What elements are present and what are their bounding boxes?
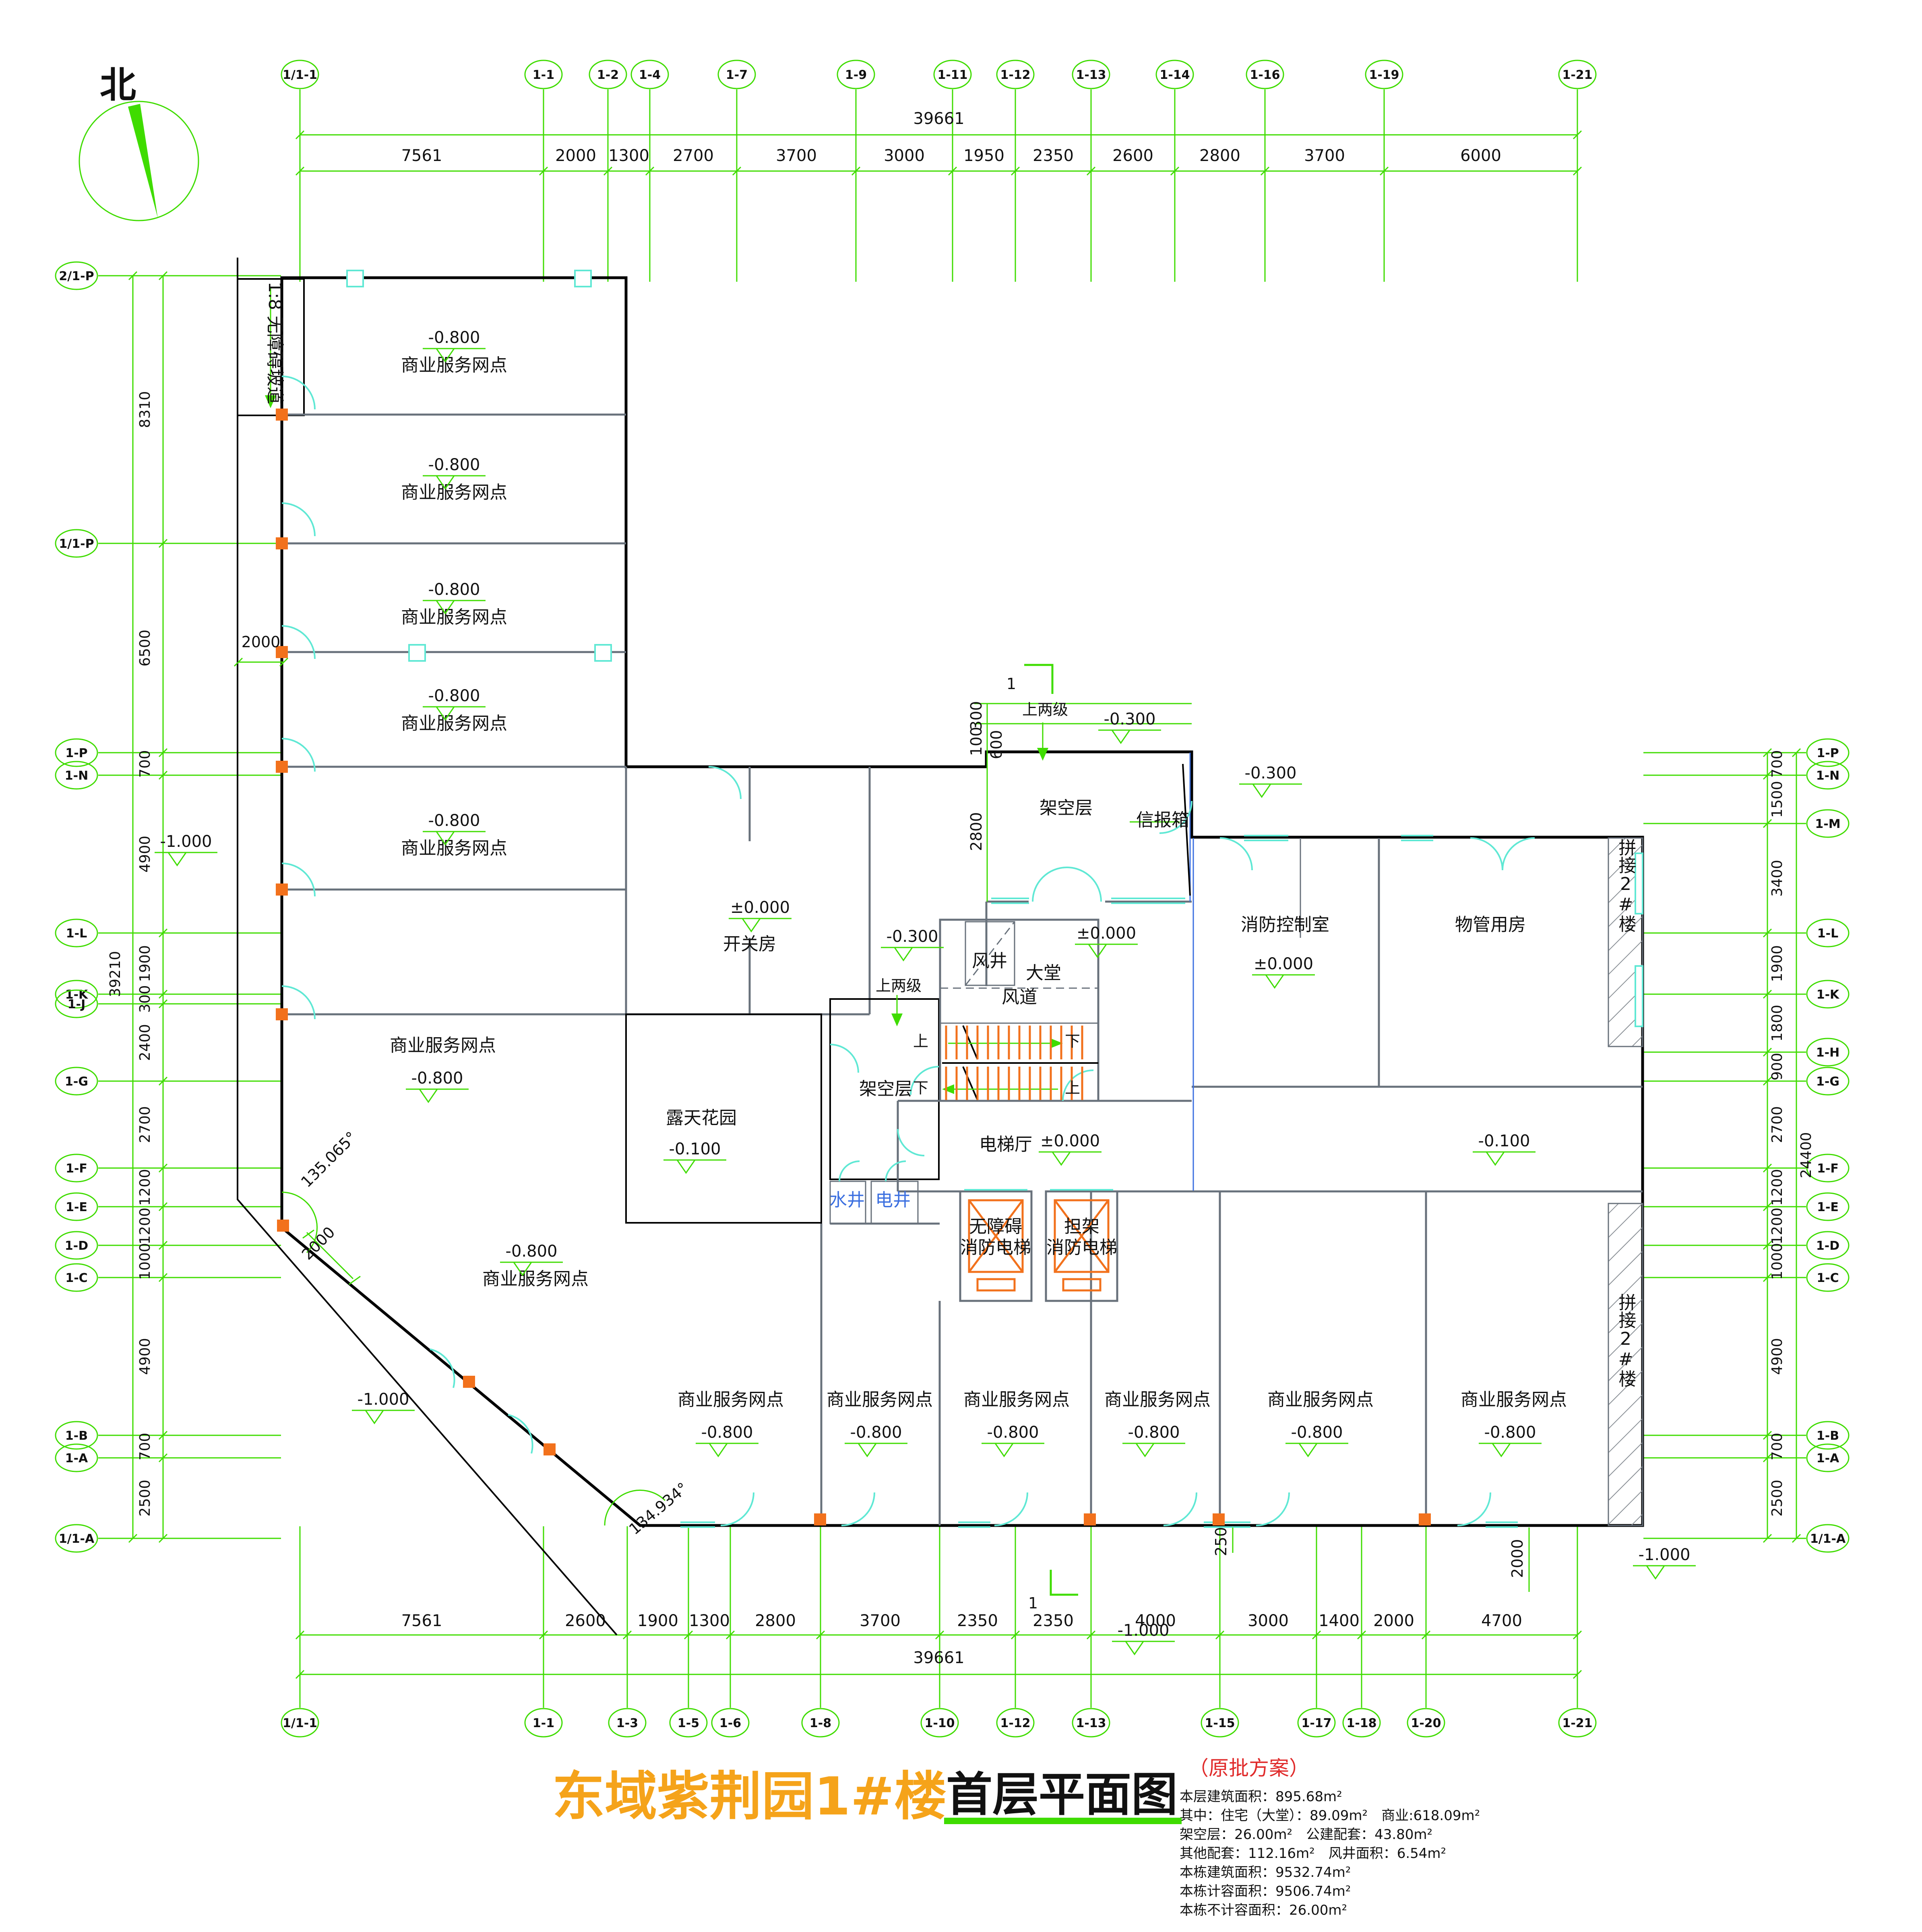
grid-bubble-label-right: 1-G	[1816, 1075, 1839, 1089]
elevation-symbol	[1112, 1641, 1175, 1654]
dim-text-left: 1200	[137, 1207, 153, 1245]
up2-arrow-top-head	[1037, 748, 1048, 761]
annotation-d600: 600	[988, 730, 1005, 760]
stats-line-6: 本栋计容面积：9506.74m²	[1180, 1883, 1351, 1899]
grid-bubble-label-top: 1-9	[845, 68, 867, 82]
dim-total-top: 39661	[913, 109, 964, 128]
elevation-symbol	[663, 1160, 726, 1173]
elevation-value: -0.300	[1245, 764, 1297, 782]
dim-text-bottom: 3000	[1248, 1612, 1289, 1630]
room-label-switch_room: 开关房	[723, 934, 776, 954]
elevation-value: -0.800	[987, 1423, 1039, 1442]
window-square-3	[409, 645, 425, 661]
elevation-symbol	[1098, 730, 1161, 743]
grid-bubble-label-bottom: 1-20	[1411, 1716, 1441, 1730]
building-walls	[282, 278, 1643, 1525]
pm-room-double-door	[1470, 838, 1535, 870]
stats-line-3: 架空层：26.00m² 公建配套：43.80m²	[1180, 1827, 1432, 1843]
elevation-symbol	[1479, 1443, 1542, 1456]
grid-bubble-label-right: 1-A	[1817, 1451, 1839, 1466]
dim-text-right: 700	[1769, 1433, 1786, 1461]
elevation-symbol	[155, 852, 217, 865]
grid-bubble-label-right: 1-E	[1817, 1200, 1839, 1214]
annotation-ang2: 134.934°	[626, 1479, 691, 1538]
grid-bubble-label-top: 1-13	[1076, 68, 1106, 82]
room-label-shop: 商业服务网点	[401, 355, 507, 376]
elevation-value: -0.100	[669, 1140, 721, 1158]
grid-bubble-label-bottom: 1-10	[924, 1716, 955, 1730]
elevation-marker: ±0.000	[729, 898, 792, 931]
elevation-value: -0.800	[428, 811, 480, 830]
grid-bubble-label-bottom: 1-8	[810, 1716, 831, 1730]
dim-text-top: 3700	[776, 147, 817, 165]
grid-bubble-label-left: 1-E	[66, 1200, 87, 1214]
window-square-1	[347, 270, 363, 287]
grid-bubble-label-bottom: 1-5	[678, 1716, 699, 1730]
grid-bubble-label-right: 1-H	[1816, 1046, 1839, 1060]
elevation-marker: -0.800	[1285, 1423, 1348, 1456]
elevation-marker: -0.800	[696, 1423, 758, 1456]
grid-system: 1/1-11-11-21-41-71-91-111-121-131-141-16…	[56, 60, 1849, 1737]
elevator-1-counterweight	[978, 1279, 1015, 1290]
dim-text-bottom: 2350	[957, 1612, 998, 1630]
grid-bubble-label-top: 1-2	[597, 68, 619, 82]
room-label-fire_elev: 消防电梯	[960, 1237, 1031, 1258]
elevation-marker: ±0.000	[1039, 1132, 1102, 1165]
elevation-marker: -1.000	[155, 832, 217, 865]
dim-text-right: 3400	[1769, 860, 1786, 897]
elevation-symbol	[352, 1410, 415, 1423]
drawing-title: 首层平面图	[946, 1768, 1178, 1822]
project-title: 东域紫荆园1#楼	[552, 1766, 947, 1827]
room-label-shop: 商业服务网点	[401, 713, 507, 734]
room-label-shop: 商业服务网点	[1104, 1389, 1211, 1410]
elevation-value: -1.000	[358, 1390, 409, 1409]
grid-bubble-label-left: 1-N	[65, 769, 88, 783]
elevation-value: ±0.000	[730, 898, 790, 917]
annotation-d100: 100	[967, 727, 985, 756]
grid-bubble-label-left: 1-G	[65, 1075, 88, 1089]
elevation-value: -0.800	[428, 328, 480, 347]
room-label-elev_hall: 电梯厅	[979, 1134, 1032, 1155]
elevation-symbol	[729, 919, 792, 931]
corridor-walls	[1192, 1087, 1643, 1191]
grid-bubble-label-right: 1-D	[1816, 1239, 1839, 1253]
elevation-value: -0.800	[1484, 1423, 1536, 1442]
elevation-symbol	[1075, 944, 1138, 957]
grid-bubble-label-bottom: 1-18	[1346, 1716, 1376, 1730]
dim-text-left: 8310	[137, 391, 153, 428]
dim-text-top: 1300	[608, 147, 649, 165]
room-label-fire_ctrl: 消防控制室	[1241, 914, 1329, 935]
dim-text-left: 300	[137, 985, 153, 1013]
elevation-marker: -1.000	[1112, 1621, 1175, 1654]
dim-text-right: 700	[1769, 750, 1786, 778]
dim-text-left: 4900	[137, 1338, 153, 1375]
dim-text-bottom: 1400	[1319, 1612, 1360, 1630]
grid-bubble-label-bottom: 1-1	[533, 1716, 554, 1730]
dim-text-top: 2000	[555, 147, 596, 165]
bottom-room-walls	[821, 1191, 1426, 1525]
room-label-shop: 商业服务网点	[401, 838, 507, 859]
grid-bubble-label-top: 1-7	[726, 68, 748, 82]
dim-text-bottom: 4700	[1481, 1612, 1522, 1630]
dim-text-top: 7561	[401, 147, 442, 165]
annotation-d2000: 2000	[1509, 1539, 1526, 1578]
east-window-2	[1635, 966, 1643, 1026]
dim-text-right: 2500	[1769, 1480, 1786, 1517]
grid-bubble-label-right: 1-M	[1815, 817, 1840, 831]
grid-bubble-label-top: 1-4	[639, 68, 661, 82]
dim-text-left: 6500	[137, 630, 153, 667]
grid-bubble-label-bottom: 1-13	[1076, 1716, 1106, 1730]
room-label-elec_shaft: 电井	[875, 1190, 911, 1210]
elevation-value: -1.000	[1639, 1546, 1691, 1564]
grid-bubble-label-left: 1-J	[68, 997, 86, 1011]
grid-bubble-label-bottom: 1-3	[616, 1716, 638, 1730]
dim-total-left: 39210	[107, 951, 124, 997]
dim-text-top: 2600	[1112, 147, 1153, 165]
elevation-value: -0.800	[506, 1242, 558, 1261]
dim-text-right: 1200	[1769, 1207, 1786, 1245]
annotation-down: 下	[913, 1079, 928, 1097]
stats-line-1: 本层建筑面积：895.68m²	[1180, 1789, 1342, 1805]
room-label-join2: 拼接2#楼	[1616, 1293, 1636, 1387]
elevation-value: -0.800	[428, 580, 480, 599]
annotation-up2: 上两级	[1022, 701, 1068, 718]
door-arc-switch-room	[709, 767, 741, 799]
stats-line-7: 本栋不计容面积：26.00m²	[1180, 1902, 1347, 1918]
annotation-d2800: 2800	[967, 812, 985, 851]
dim-text-bottom: 2800	[755, 1612, 796, 1630]
grid-bubble-label-top: 1-11	[937, 68, 967, 82]
grid-bubble-label-left: 1-C	[65, 1271, 87, 1285]
elevation-value: -1.000	[1118, 1621, 1170, 1640]
elevation-symbol	[1039, 1152, 1102, 1165]
north-needle	[128, 104, 158, 218]
dim-text-top: 2800	[1199, 147, 1240, 165]
grid-bubble-label-left: 1-L	[66, 927, 87, 941]
grid-bubble-label-left: 1-D	[65, 1239, 88, 1253]
room-label-fire_elev: 消防电梯	[1046, 1237, 1117, 1258]
room-label-ramp: 1:8 无障碍坡道	[265, 282, 285, 405]
elevation-symbol	[1252, 975, 1315, 988]
annotation-sec: 1	[1028, 1594, 1038, 1612]
elevation-value: ±0.000	[1077, 924, 1136, 943]
floor-plan-canvas: 1/1-11-11-21-41-71-91-111-121-131-141-16…	[0, 0, 1922, 1932]
elevation-value: -0.300	[887, 927, 938, 946]
stair-arrow-down-head	[942, 1084, 954, 1094]
elevation-value: -0.800	[428, 456, 480, 474]
dim-text-top: 3700	[1304, 147, 1345, 165]
grid-bubble-label-top: 1-19	[1369, 68, 1399, 82]
elevation-marker: ±0.000	[1252, 955, 1315, 988]
dim-text-left: 1000	[137, 1243, 153, 1280]
dim-text-right: 1800	[1769, 1005, 1786, 1042]
elevation-value: ±0.000	[1040, 1132, 1100, 1150]
dim-text-bottom: 2350	[1033, 1612, 1074, 1630]
door-arcs-bottom	[721, 1492, 1490, 1525]
grid-bubble-label-bottom: 1-12	[1000, 1716, 1030, 1730]
elevation-value: -0.800	[1291, 1423, 1343, 1442]
grid-bubble-label-right: 1-N	[1816, 769, 1839, 783]
elevation-symbol	[696, 1443, 758, 1456]
dim-text-left: 700	[137, 750, 153, 778]
dim-text-right: 1900	[1769, 945, 1786, 982]
elevation-marker: -0.800	[1479, 1423, 1542, 1456]
annotation-up: 上	[913, 1032, 928, 1050]
dim-text-right: 1200	[1769, 1169, 1786, 1206]
dim-text-bottom: 1900	[637, 1612, 678, 1630]
room-label-shop: 商业服务网点	[1267, 1389, 1374, 1410]
door-arc-hall	[898, 1129, 924, 1156]
grid-bubble-label-right: 1/1-A	[1810, 1532, 1846, 1546]
annotation-graphics	[234, 658, 1529, 1595]
grid-bubble-label-right: 1-F	[1817, 1162, 1839, 1176]
room-label-mailbox: 信报箱	[1136, 810, 1189, 830]
grid-bubble-label-top: 1-1	[533, 68, 554, 82]
grid-bubble-label-left: 2/1-P	[59, 269, 94, 283]
dim-total-right: 24400	[1798, 1132, 1815, 1179]
dim-text-top: 2350	[1033, 147, 1074, 165]
room-label-void_floor: 架空层	[1040, 798, 1093, 818]
elevation-value: -0.100	[1478, 1132, 1530, 1150]
grid-bubble-label-left: 1-P	[65, 746, 87, 760]
room-label-lobby: 大堂	[1026, 963, 1061, 983]
dim-text-right: 1500	[1769, 781, 1786, 818]
north-arrow: 北	[79, 64, 198, 221]
room-label-shop: 商业服务网点	[401, 607, 507, 627]
elevation-value: -0.800	[411, 1069, 463, 1088]
elevation-marker: -1.000	[352, 1390, 415, 1423]
east-window-1	[1635, 853, 1643, 914]
grid-bubble-label-top: 1-21	[1562, 68, 1592, 82]
annotation-down: 下	[1065, 1032, 1080, 1050]
section-bracket-top	[1024, 665, 1052, 694]
annotation-d2000: 2000	[242, 633, 281, 651]
dim-text-left: 4900	[137, 836, 153, 873]
annotation-up: 上	[1065, 1079, 1080, 1097]
elevation-marker: -0.800	[845, 1423, 907, 1456]
dim-text-left: 2500	[137, 1480, 153, 1517]
elevation-marker: -0.300	[1239, 764, 1302, 797]
window-square-4	[595, 645, 611, 661]
room-label-elev1a: 无障碍	[969, 1216, 1022, 1237]
room-label-elev2a: 担架	[1064, 1216, 1099, 1237]
room-label-wind_duct: 风道	[1002, 987, 1037, 1007]
drawing-title-underline	[944, 1818, 1182, 1824]
elevation-symbol	[1285, 1443, 1348, 1456]
room-label-shop: 商业服务网点	[827, 1389, 933, 1410]
room-label-shop: 商业服务网点	[963, 1389, 1070, 1410]
elevation-symbol	[406, 1089, 469, 1102]
room-label-pm_room: 物管用房	[1455, 914, 1526, 935]
elevation-symbol	[881, 947, 944, 960]
room-label-garden: 露天花园	[666, 1108, 737, 1128]
annotation-sec: 1	[1006, 675, 1016, 693]
site-boundary	[238, 258, 617, 1635]
elevation-value: -0.300	[1104, 710, 1156, 729]
dim-text-top: 1950	[963, 147, 1004, 165]
dim-text-bottom: 1300	[689, 1612, 730, 1630]
grid-bubble-label-bottom: 1-6	[719, 1716, 741, 1730]
dim-text-left: 700	[137, 1433, 153, 1461]
elevation-value: -0.800	[850, 1423, 902, 1442]
door-arcs-west	[282, 376, 315, 1019]
grid-bubble-label-right: 1-C	[1817, 1271, 1839, 1285]
elevation-marker: -0.100	[663, 1140, 726, 1173]
elevation-marker: ±0.000	[1075, 924, 1138, 957]
grid-bubble-label-left: 1/1-A	[59, 1532, 95, 1546]
window-square-2	[575, 270, 591, 287]
dim-text-right: 1000	[1769, 1243, 1786, 1280]
room-label-join2: 拼接2#楼	[1616, 838, 1636, 933]
dim-text-left: 2400	[137, 1024, 153, 1061]
elevation-marker: -1.000	[1633, 1546, 1696, 1579]
elevation-value: -0.800	[1128, 1423, 1180, 1442]
elevation-symbol	[1122, 1443, 1185, 1456]
door-arc-fire-room	[1220, 838, 1252, 870]
elevation-symbol	[1473, 1152, 1536, 1165]
elevation-value: ±0.000	[1254, 955, 1313, 973]
lobby-entry-double-door	[1033, 867, 1101, 902]
grid-bubble-label-bottom: 1/1-1	[283, 1716, 317, 1730]
elevation-symbol	[1239, 784, 1302, 797]
stats-line-4: 其他配套：112.16m² 风井面积：6.54m²	[1180, 1845, 1446, 1862]
drawing-note: （原批方案）	[1188, 1757, 1309, 1780]
annotation-d250: 250	[1212, 1527, 1230, 1556]
dim-text-top: 2700	[673, 147, 714, 165]
elevator-2-counterweight	[1063, 1279, 1100, 1290]
dim-text-left: 2700	[137, 1106, 153, 1143]
elevation-symbol	[845, 1443, 907, 1456]
elevation-marker: -0.800	[1122, 1423, 1185, 1456]
elevation-marker: -0.800	[982, 1423, 1044, 1456]
interior-walls-left-block	[282, 415, 870, 1014]
doors-windows	[282, 270, 1643, 1527]
elevation-value: -0.800	[428, 687, 480, 705]
annotation-ang1: 135.065°	[298, 1128, 360, 1191]
join-strips	[1608, 838, 1643, 1525]
exterior-wall	[282, 278, 1643, 1525]
grid-bubble-label-right: 1-K	[1817, 988, 1840, 1002]
room-label-shop: 商业服务网点	[401, 482, 507, 503]
dim-text-bottom: 3700	[860, 1612, 901, 1630]
room-label-water_shaft: 水井	[829, 1190, 865, 1210]
elevation-symbol	[1633, 1566, 1696, 1579]
grid-bubble-label-bottom: 1-15	[1205, 1716, 1235, 1730]
grid-bubble-label-right: 1-L	[1817, 927, 1838, 941]
elevation-marker: -0.300	[1098, 710, 1161, 743]
grid-bubble-label-left: 1-B	[65, 1429, 88, 1443]
elevation-marker: -0.100	[1473, 1132, 1536, 1165]
elevation-marker: -0.800	[406, 1069, 469, 1102]
section-bracket-bottom	[1051, 1570, 1078, 1595]
grid-bubble-label-top: 1-12	[1000, 68, 1030, 82]
elevation-value: -1.000	[160, 832, 212, 851]
grid-bubble-label-top: 1-14	[1159, 68, 1190, 82]
stats-line-5: 本栋建筑面积：9532.74m²	[1180, 1864, 1351, 1880]
dim-text-left: 1200	[137, 1169, 153, 1206]
dim-text-right: 4900	[1769, 1338, 1786, 1375]
grid-bubble-label-right: 1-P	[1817, 746, 1839, 760]
room-label-shop: 商业服务网点	[482, 1269, 589, 1289]
north-label: 北	[100, 64, 136, 106]
dim-line-2000-left	[234, 658, 288, 666]
stats-line-2: 其中：住宅（大堂）：89.09m² 商业:618.09m²	[1180, 1808, 1480, 1824]
door-arcs-void-floor	[830, 1044, 939, 1181]
dim-text-left: 1900	[137, 945, 153, 982]
dim-text-top: 3000	[884, 147, 925, 165]
grid-bubble-label-bottom: 1-17	[1301, 1716, 1331, 1730]
grid-bubble-label-left: 1-F	[66, 1162, 87, 1176]
dim-text-right: 2700	[1769, 1106, 1786, 1143]
grid-bubble-label-top: 1/1-1	[283, 68, 317, 82]
dim-text-top: 6000	[1460, 147, 1501, 165]
grid-bubble-label-top: 1-16	[1250, 68, 1280, 82]
grid-bubble-label-left: 1-A	[65, 1451, 88, 1466]
room-label-wind_shaft: 风井	[972, 951, 1007, 971]
dim-text-right: 900	[1769, 1053, 1786, 1081]
elevation-marker: -0.300	[881, 927, 944, 960]
annotation-up2: 上两级	[876, 977, 922, 995]
grid-bubble-label-right: 1-B	[1817, 1429, 1839, 1443]
room-label-shop: 商业服务网点	[1461, 1389, 1567, 1410]
elevation-symbol	[982, 1443, 1044, 1456]
room-label-shop: 商业服务网点	[678, 1389, 784, 1410]
annotation-d300: 300	[967, 701, 985, 731]
elevation-value: -0.800	[701, 1423, 753, 1442]
dim-total-bottom: 39661	[913, 1649, 964, 1667]
dim-text-bottom: 2000	[1373, 1612, 1414, 1630]
grid-bubble-label-left: 1/1-P	[59, 537, 94, 551]
grid-bubble-label-bottom: 1-21	[1562, 1716, 1592, 1730]
site-boundary-line	[238, 258, 617, 1635]
dim-text-bottom: 7561	[401, 1612, 442, 1630]
room-label-void_floor: 架空层	[859, 1079, 912, 1099]
room-label-shop: 商业服务网点	[390, 1035, 496, 1056]
up2-arrow-mid-head	[891, 1013, 903, 1026]
